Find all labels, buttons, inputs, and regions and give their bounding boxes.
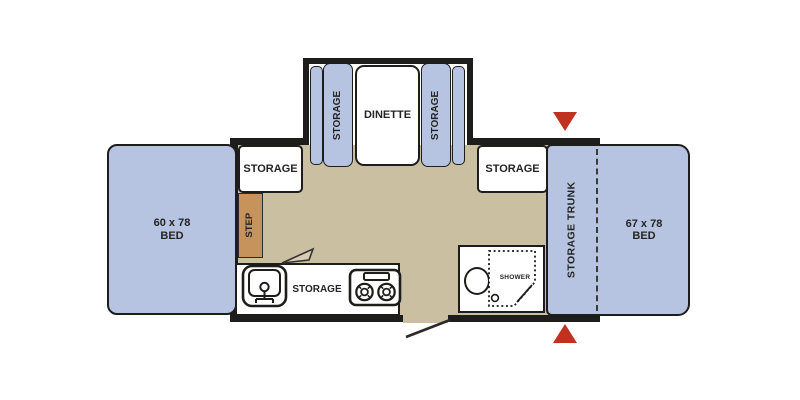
door-swing-icon xyxy=(398,316,456,342)
dinette-right-seat-label: STORAGE xyxy=(431,90,442,139)
right-storage-cabinet: STORAGE xyxy=(477,145,548,193)
left-bed: 60 x 78 BED xyxy=(107,144,237,315)
storage-trunk: STORAGE TRUNK xyxy=(546,145,598,315)
wall-bottom-right xyxy=(448,315,600,322)
left-bed-label: 60 x 78 BED xyxy=(154,217,191,241)
right-bed: 67 x 78 BED xyxy=(598,145,690,315)
trunk-arrow-down-icon xyxy=(553,112,577,131)
left-storage-label: STORAGE xyxy=(243,163,297,175)
dinette-right-seat: STORAGE xyxy=(421,63,451,167)
floorplan-canvas: STORAGE DINETTE STORAGE 60 x 78 BED STOR… xyxy=(0,0,800,400)
wall-top-left xyxy=(230,138,309,145)
trunk-arrow-up-icon xyxy=(553,324,577,343)
left-storage-cabinet: STORAGE xyxy=(238,145,303,193)
sink-icon xyxy=(241,264,289,310)
dinette-table: DINETTE xyxy=(355,65,420,166)
dinette-left-backrest xyxy=(310,66,323,165)
right-bed-label: 67 x 78 BED xyxy=(626,218,663,242)
stove-icon xyxy=(348,268,402,308)
entry-step: STEP xyxy=(238,193,263,258)
dinette-right-backrest xyxy=(452,66,465,165)
wall-bottom-left xyxy=(230,315,403,322)
dinette-left-seat-label: STORAGE xyxy=(333,90,344,139)
dinette-left-seat: STORAGE xyxy=(323,63,353,167)
shower-label: SHOWER xyxy=(500,274,530,281)
storage-trunk-label: STORAGE TRUNK xyxy=(566,182,578,279)
counter-storage-label: STORAGE xyxy=(292,284,341,295)
right-storage-label: STORAGE xyxy=(485,163,539,175)
step-label: STEP xyxy=(245,213,255,238)
dinette-label: DINETTE xyxy=(364,109,411,121)
counter-storage: STORAGE xyxy=(288,263,346,316)
shower: SHOWER xyxy=(494,272,536,284)
counter-flap-icon xyxy=(280,246,316,266)
